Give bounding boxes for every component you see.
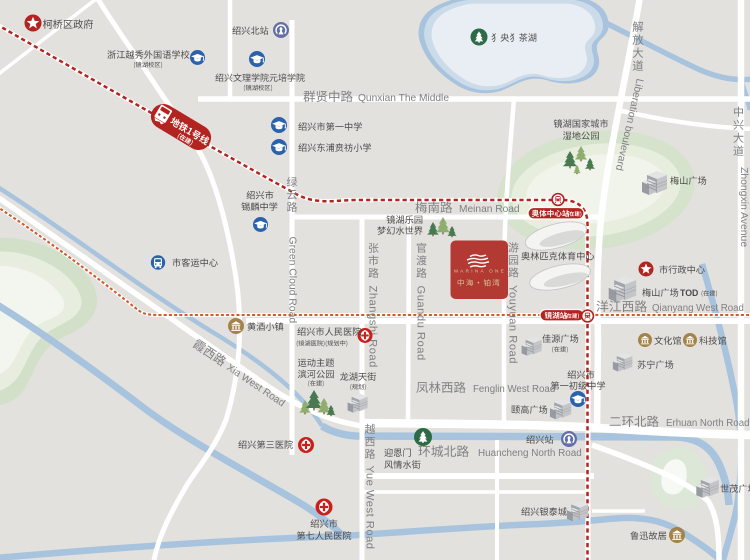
svg-text:Zhangshi Road: Zhangshi Road (367, 286, 379, 368)
svg-text:Qianyang West Road: Qianyang West Road (652, 303, 744, 314)
svg-text:Fenglin West Road: Fenglin West Road (473, 384, 555, 395)
svg-text:TOD: TOD (680, 288, 698, 298)
svg-text:Erhuan North Road: Erhuan North Road (666, 418, 749, 429)
svg-text:MARINA ONE: MARINA ONE (454, 269, 506, 275)
svg-text:Guandu Road: Guandu Road (415, 286, 427, 361)
svg-text:Yue West Road: Yue West Road (364, 466, 376, 550)
svg-text:Qunxian The Middle: Qunxian The Middle (358, 93, 449, 104)
svg-text:Meinan Road: Meinan Road (459, 204, 520, 215)
svg-text:Huancheng North Road: Huancheng North Road (478, 448, 582, 459)
svg-text:Green Cloud Road: Green Cloud Road (287, 237, 298, 324)
svg-text:Youyuan Road: Youyuan Road (507, 285, 519, 364)
svg-text:Zhongxin Avenue: Zhongxin Avenue (738, 167, 749, 247)
